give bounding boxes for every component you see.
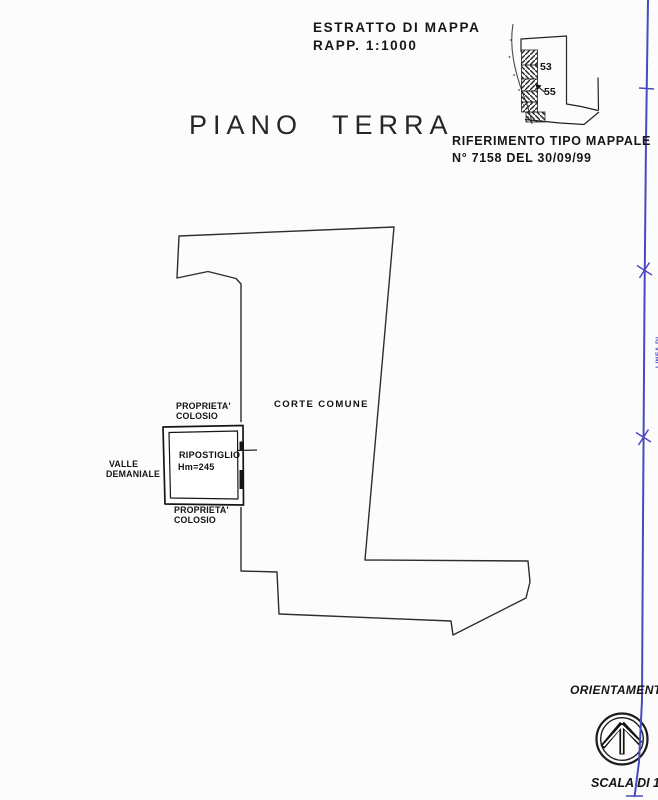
page-title: PIANO TERRA — [189, 110, 454, 141]
ripostiglio-height: Hm=245 — [178, 462, 215, 474]
map-extract-sketch — [509, 24, 599, 125]
proprieta-top-line1: PROPRIETA' — [176, 401, 231, 411]
ripostiglio-label: RIPOSTIGLIO — [179, 450, 240, 462]
proprieta-bottom-line2: COLOSIO — [174, 515, 216, 525]
cadastral-plan-sheet: ESTRATTO DI MAPPA RAPP. 1:1000 53 55 PIA… — [0, 0, 658, 800]
door-jamb-lower — [240, 470, 245, 489]
extract-right-boundary — [598, 78, 599, 111]
valle-line2: DEMANIALE — [106, 469, 160, 479]
fold-line — [626, 0, 654, 797]
parcel-number-55: 55 — [544, 86, 556, 98]
proprieta-top-line2: COLOSIO — [176, 411, 218, 421]
map-extract-title: ESTRATTO DI MAPPA — [313, 19, 480, 36]
scale-prefix: SCALA DI 1: — [591, 776, 658, 790]
reference-line1: RIFERIMENTO TIPO MAPPALE — [452, 133, 651, 150]
parcel-number-53: 53 — [540, 61, 552, 73]
door-swing-tick — [238, 450, 258, 451]
scale-label: SCALA DI 1: 2 — [591, 769, 658, 793]
valle-line1: VALLE — [109, 459, 138, 469]
map-extract-scale: RAPP. 1:1000 — [313, 37, 418, 54]
corte-comune-label: CORTE COMUNE — [274, 399, 369, 410]
fold-tick-dash — [639, 88, 654, 89]
reference-line2: N° 7158 DEL 30/09/99 — [452, 150, 592, 167]
proprieta-bottom-line1: PROPRIETA' — [174, 505, 229, 515]
orientamento-label: ORIENTAMENTO — [570, 683, 658, 697]
